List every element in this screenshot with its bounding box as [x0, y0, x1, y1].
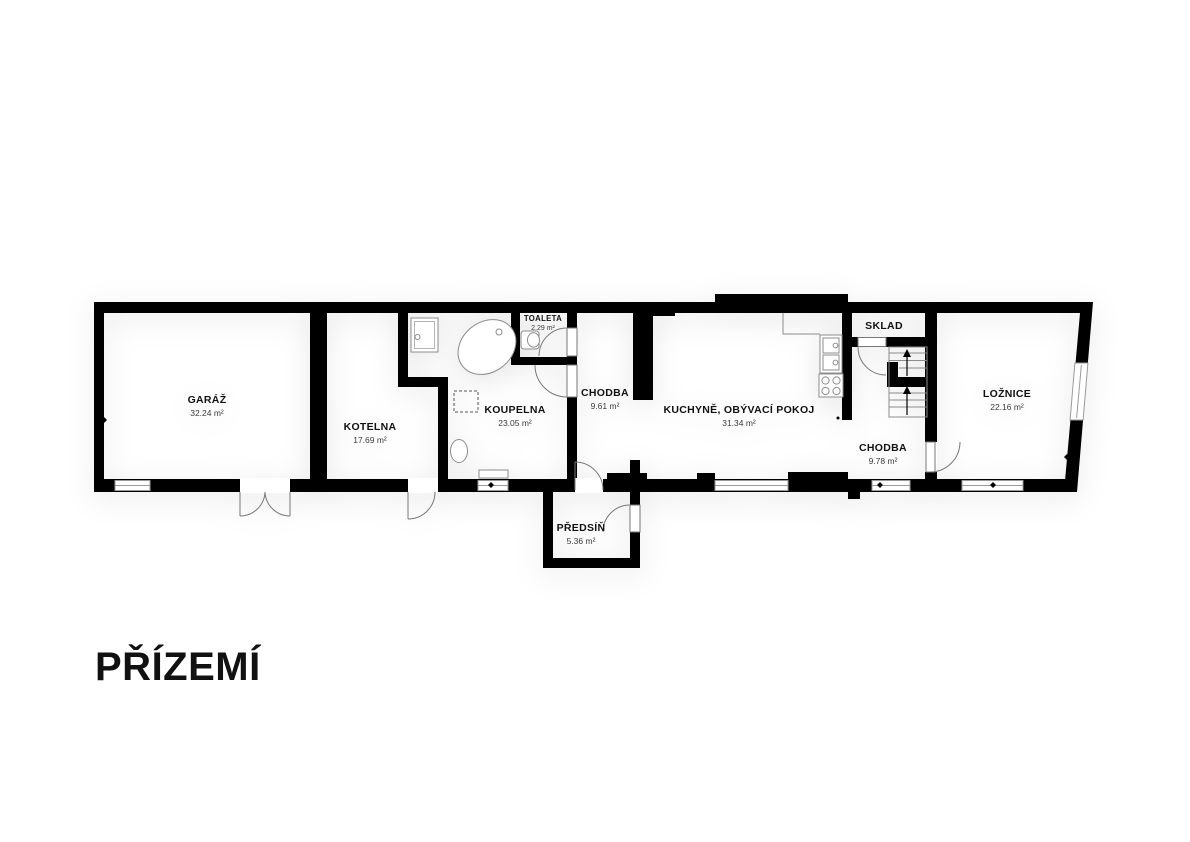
door-toilet [539, 328, 577, 356]
room-label-boilerroom: KOTELNA 17.69 m² [344, 421, 397, 445]
svg-text:KUCHYNĚ, OBÝVACÍ POKOJ: KUCHYNĚ, OBÝVACÍ POKOJ [663, 403, 814, 416]
svg-text:31.34 m²: 31.34 m² [722, 418, 756, 428]
svg-text:5.36 m²: 5.36 m² [567, 536, 596, 546]
window-livingroom [715, 481, 788, 491]
svg-text:17.69 m²: 17.69 m² [353, 435, 387, 445]
svg-text:32.24 m²: 32.24 m² [190, 408, 224, 418]
room-label-kitchen-livingroom: KUCHYNĚ, OBÝVACÍ POKOJ 31.34 m² [663, 403, 814, 428]
washing-machine [411, 318, 438, 352]
room-label-garage: GARÁŽ 32.24 m² [188, 393, 227, 418]
bathroom-sink [451, 440, 468, 463]
door-storage [858, 338, 886, 376]
svg-text:GARÁŽ: GARÁŽ [188, 393, 227, 406]
svg-text:LOŽNICE: LOŽNICE [983, 387, 1031, 400]
room-label-toilet: TOALETA 2.29 m² [524, 314, 562, 332]
svg-text:9.78 m²: 9.78 m² [869, 456, 898, 466]
window-garage [115, 481, 150, 491]
planned-fixture-dashed [454, 391, 478, 412]
window-bedroom-east [1070, 363, 1088, 420]
door-boilerroom [408, 492, 435, 519]
floorplan-svg: GARÁŽ 32.24 m² KOTELNA 17.69 m² KOUPELNA… [0, 0, 1190, 842]
svg-text:9.61 m²: 9.61 m² [591, 401, 620, 411]
floorplan: GARÁŽ 32.24 m² KOTELNA 17.69 m² KOUPELNA… [94, 294, 1093, 568]
kitchen-sink [820, 335, 842, 373]
svg-text:KOUPELNA: KOUPELNA [484, 404, 545, 416]
svg-text:TOALETA: TOALETA [524, 314, 562, 323]
door-garage-double [240, 492, 290, 516]
svg-text:22.16 m²: 22.16 m² [990, 402, 1024, 412]
passage-dots [837, 417, 847, 420]
kitchen-counter [783, 313, 820, 334]
toilet-fixture [521, 331, 540, 349]
door-bathroom [535, 365, 577, 397]
svg-text:KOTELNA: KOTELNA [344, 421, 397, 433]
radiator [479, 470, 508, 478]
room-label-hall1: CHODBA 9.61 m² [581, 387, 629, 411]
room-label-storage: SKLAD [865, 320, 903, 332]
floor-title: PŘÍZEMÍ [95, 645, 261, 690]
room-label-bathroom: KOUPELNA 23.05 m² [484, 404, 545, 428]
windows [115, 363, 1088, 491]
svg-text:CHODBA: CHODBA [581, 387, 629, 399]
svg-text:SKLAD: SKLAD [865, 320, 903, 332]
floorplan-page: GARÁŽ 32.24 m² KOTELNA 17.69 m² KOUPELNA… [0, 0, 1190, 842]
svg-text:2.29 m²: 2.29 m² [531, 325, 555, 332]
svg-text:23.05 m²: 23.05 m² [498, 418, 532, 428]
room-label-vestibule: PŘEDSÍŇ 5.36 m² [557, 521, 606, 546]
svg-text:CHODBA: CHODBA [859, 442, 907, 454]
door-bedroom [926, 442, 960, 472]
svg-text:PŘEDSÍŇ: PŘEDSÍŇ [557, 521, 606, 534]
room-label-hall2: CHODBA 9.78 m² [859, 442, 907, 466]
room-label-bedroom: LOŽNICE 22.16 m² [983, 387, 1031, 412]
door-vestibule-entrance [603, 505, 640, 532]
stove [819, 374, 843, 397]
